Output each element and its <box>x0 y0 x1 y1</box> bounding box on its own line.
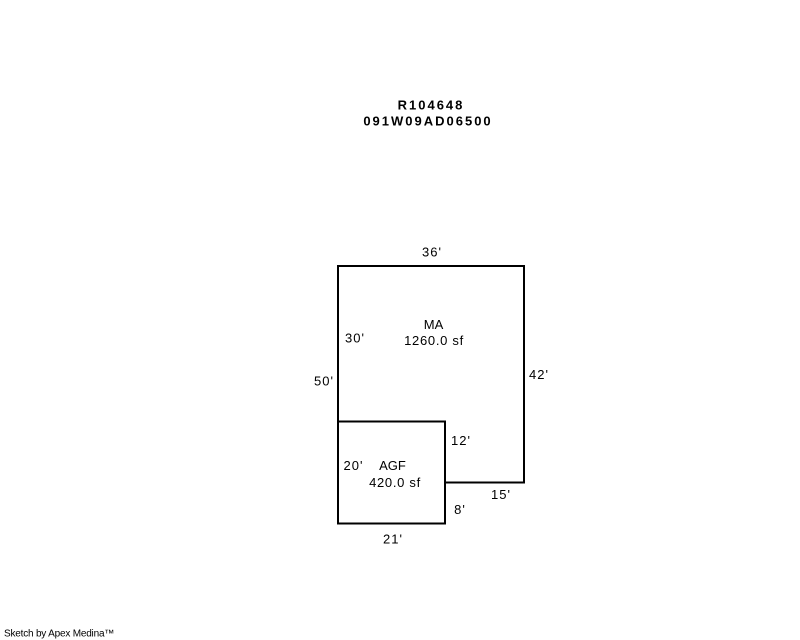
svg-text:R104648: R104648 <box>398 98 465 113</box>
svg-text:15': 15' <box>491 487 511 502</box>
svg-text:MA: MA <box>424 317 444 332</box>
svg-text:50': 50' <box>314 374 334 389</box>
svg-text:Sketch by Apex Medina™: Sketch by Apex Medina™ <box>4 629 114 640</box>
svg-text:30': 30' <box>345 331 365 346</box>
svg-text:1260.0 sf: 1260.0 sf <box>404 333 464 348</box>
svg-text:20': 20' <box>344 458 364 473</box>
svg-text:091W09AD06500: 091W09AD06500 <box>363 114 492 129</box>
svg-text:420.0 sf: 420.0 sf <box>369 475 421 490</box>
svg-text:AGF: AGF <box>379 458 406 473</box>
svg-text:8': 8' <box>454 502 466 517</box>
svg-text:12': 12' <box>451 433 471 448</box>
svg-text:36': 36' <box>422 245 442 260</box>
svg-text:42': 42' <box>529 367 549 382</box>
svg-text:21': 21' <box>383 532 403 547</box>
